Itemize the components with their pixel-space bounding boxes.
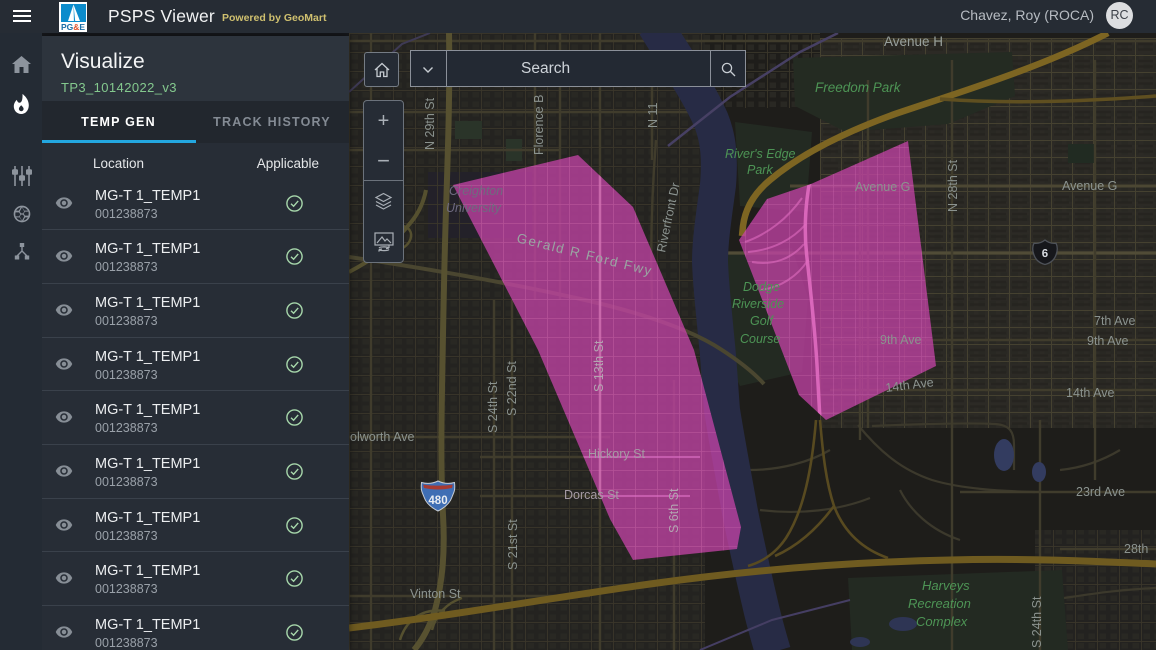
svg-text:7th Ave: 7th Ave [1094, 314, 1136, 328]
svg-text:N 29th St: N 29th St [423, 97, 437, 150]
svg-text:Avenue G: Avenue G [855, 180, 910, 194]
svg-text:S 21st St: S 21st St [506, 519, 520, 570]
svg-text:S 24th St: S 24th St [1030, 596, 1044, 648]
svg-text:N 11: N 11 [646, 102, 660, 128]
svg-text:olworth Ave: olworth Ave [350, 430, 414, 444]
svg-text:Avenue G: Avenue G [1062, 179, 1117, 193]
svg-text:Recreation: Recreation [908, 596, 971, 611]
svg-text:Riverside: Riverside [732, 297, 784, 311]
svg-text:S 6th St: S 6th St [667, 488, 681, 533]
svg-text:9th Ave: 9th Ave [1087, 334, 1129, 348]
svg-text:Dodge: Dodge [743, 280, 780, 294]
svg-text:S 13th St: S 13th St [592, 340, 606, 392]
svg-text:9th Ave: 9th Ave [880, 333, 922, 347]
svg-text:480: 480 [428, 495, 447, 507]
svg-text:23rd Ave: 23rd Ave [1076, 485, 1125, 499]
svg-text:Harveys: Harveys [922, 578, 970, 593]
svg-text:S 22nd St: S 22nd St [505, 361, 519, 416]
svg-text:Golf: Golf [750, 314, 774, 328]
svg-text:Florence B: Florence B [532, 95, 546, 155]
svg-text:6: 6 [1042, 248, 1048, 260]
svg-text:Avenue H: Avenue H [884, 34, 943, 49]
svg-text:Hickory St: Hickory St [588, 447, 645, 461]
svg-text:Park: Park [747, 163, 773, 177]
svg-text:N 28th St: N 28th St [946, 159, 960, 212]
svg-text:University: University [446, 201, 502, 215]
svg-text:Freedom Park: Freedom Park [815, 80, 902, 95]
svg-text:Vinton St: Vinton St [410, 587, 461, 601]
svg-text:28th: 28th [1124, 542, 1148, 556]
svg-text:S 24th St: S 24th St [486, 381, 500, 433]
svg-text:14th Ave: 14th Ave [1066, 386, 1114, 400]
svg-text:Creighton: Creighton [449, 184, 503, 198]
svg-text:Complex: Complex [916, 614, 968, 629]
svg-text:Course: Course [740, 332, 780, 346]
svg-text:River's Edge: River's Edge [725, 147, 796, 161]
svg-text:Dorcas St: Dorcas St [564, 488, 619, 502]
